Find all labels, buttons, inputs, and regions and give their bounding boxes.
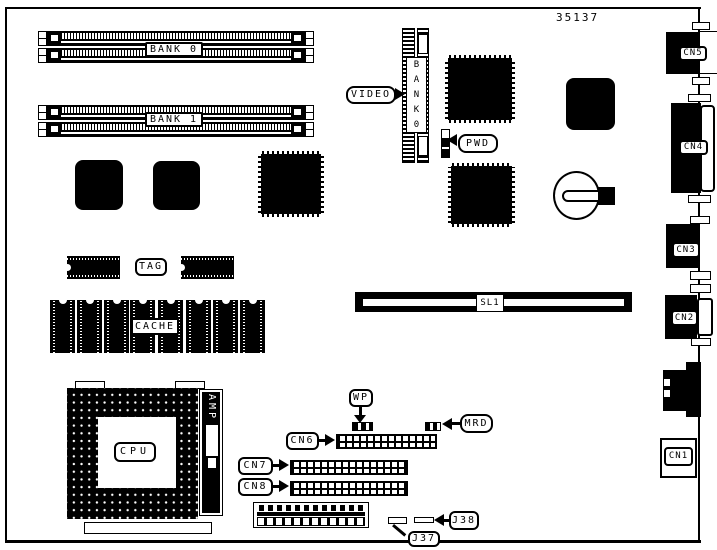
battery-clip-end — [598, 187, 615, 205]
slot-end — [305, 122, 314, 137]
rear-line — [700, 73, 717, 74]
mrd-connector — [425, 422, 441, 431]
slot-end — [305, 31, 314, 46]
j38-jumper — [414, 517, 434, 523]
j38-pointer-icon — [434, 514, 444, 526]
bank1-label: BANK 1 — [145, 112, 203, 127]
cache-chip — [77, 300, 102, 353]
audio-jack-connector — [686, 410, 701, 417]
j37-pointer-line — [392, 524, 406, 537]
bank0-label: BANK 0 — [145, 42, 203, 57]
rear-tab — [691, 338, 711, 346]
rear-tab — [690, 271, 711, 280]
cn4-label: CN4 — [679, 140, 708, 155]
slot-latch — [50, 51, 59, 59]
rear-tab — [692, 22, 710, 30]
tag-chip-right — [181, 256, 234, 279]
slot-end — [38, 122, 47, 137]
slot-latch — [50, 34, 59, 42]
video-slot-key — [418, 34, 428, 54]
chip-plain-upper-right — [566, 78, 615, 130]
motherboard-diagram: 35137 BANK 0 BANK 1 BANK0 VIDEO — [0, 0, 717, 550]
cn8-pointer-icon — [279, 480, 289, 492]
slot-latch — [293, 34, 302, 42]
cn2-dsub-shell — [697, 298, 713, 336]
cache-chip — [186, 300, 211, 353]
cache-chip — [240, 300, 265, 353]
chip-plain-left-1 — [75, 160, 123, 210]
front-panel-connector — [253, 502, 369, 528]
cpu-socket-lever — [84, 522, 212, 534]
rear-tab — [688, 94, 711, 102]
cn6-pointer-icon — [325, 434, 335, 446]
cn7-label: CN7 — [238, 457, 273, 475]
rear-line — [700, 31, 717, 32]
wp-label: WP — [349, 389, 373, 407]
slot-end — [305, 48, 314, 63]
slot-end — [38, 105, 47, 120]
audio-jack-hole — [664, 379, 670, 386]
rear-tab — [690, 216, 710, 224]
slot-latch — [293, 51, 302, 59]
slot-end — [305, 105, 314, 120]
cn1-label: CN1 — [664, 447, 693, 466]
cn8-label: CN8 — [238, 478, 273, 496]
board-edge-left — [5, 7, 7, 542]
video-bank-label-text: BANK0 — [414, 58, 420, 133]
video-slot-key — [418, 136, 428, 156]
slot-end — [38, 31, 47, 46]
slot-latch — [293, 108, 302, 116]
slot-latch — [293, 125, 302, 133]
cn7-pointer-icon — [279, 459, 289, 471]
wp-jumper — [352, 422, 373, 431]
slot-end — [38, 48, 47, 63]
slot-latch — [50, 125, 59, 133]
part-number: 35137 — [556, 12, 599, 24]
j37-label: J37 — [408, 531, 440, 547]
audio-jack-hole — [664, 390, 670, 397]
cn5-label: CN5 — [679, 46, 707, 61]
front-panel-bar — [257, 512, 365, 516]
cn7-header — [290, 460, 408, 475]
amp-bracket-slot — [206, 425, 218, 456]
front-panel-sockets — [257, 517, 365, 526]
board-edge-top — [5, 7, 701, 9]
tag-label: TAG — [135, 258, 167, 276]
sl1-label: SL1 — [476, 294, 504, 312]
cache-label: CACHE — [131, 318, 179, 335]
cpu-label: CPU — [114, 442, 156, 462]
video-callout: VIDEO — [346, 86, 396, 104]
j38-label: J38 — [449, 511, 479, 530]
rear-tab — [688, 195, 711, 203]
rear-tab — [690, 284, 711, 293]
cn8-header — [290, 481, 408, 496]
chip-qfp-video — [445, 55, 515, 123]
rear-tab — [692, 77, 710, 85]
cn3-label: CN3 — [672, 242, 700, 258]
pwd-label: PWD — [458, 134, 498, 153]
amp-label: AMP — [206, 394, 217, 421]
slot-latch — [50, 108, 59, 116]
chip-qfp-left — [258, 151, 324, 217]
amp-bracket-slot-small — [208, 458, 216, 468]
cache-chip — [50, 300, 75, 353]
battery-clip — [562, 190, 600, 202]
cache-chip — [104, 300, 129, 353]
chip-plain-left-2 — [153, 161, 200, 210]
tag-chip-left — [67, 256, 120, 279]
chip-qfp-mid — [448, 163, 515, 227]
cn2-label: CN2 — [671, 310, 698, 326]
mrd-label: MRD — [460, 414, 493, 433]
board-edge-bottom — [5, 540, 701, 543]
cn6-label: CN6 — [286, 432, 319, 450]
pwd-pointer-icon — [447, 134, 457, 146]
cache-chip — [213, 300, 238, 353]
video-bank-label: BANK0 — [406, 57, 427, 133]
cn6-header — [336, 434, 437, 449]
front-panel-pins — [259, 505, 363, 511]
j37-jumper — [388, 517, 407, 524]
video-pointer-icon — [395, 88, 405, 100]
